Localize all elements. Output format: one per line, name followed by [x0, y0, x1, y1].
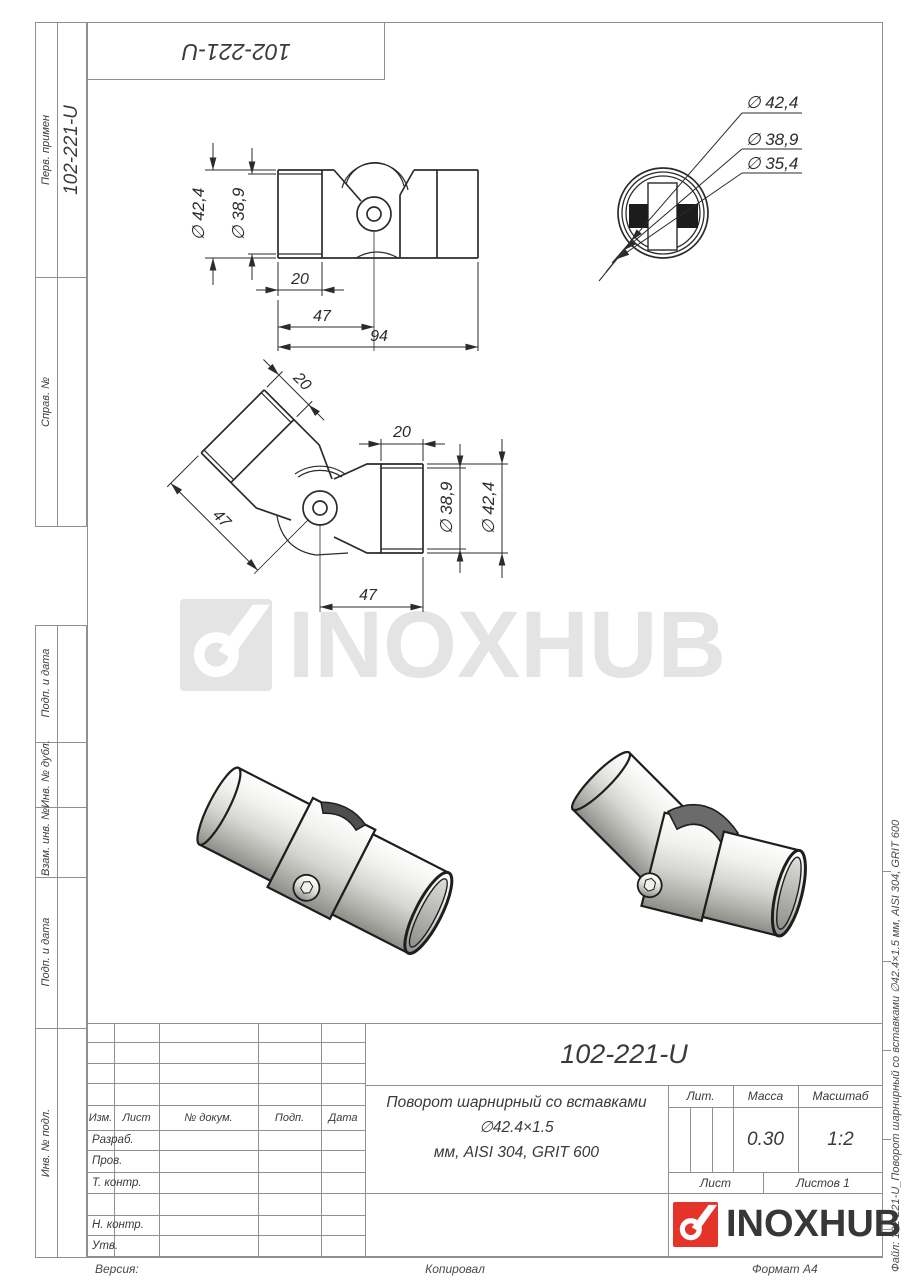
tb-header-list: Лист: [114, 1105, 159, 1130]
sidebar-label-inv-dubl: Инв. № дубл.: [40, 740, 52, 808]
tb-header-dokum: № докум.: [159, 1105, 258, 1130]
sidebar-label-perv-primen: Перв. примен: [40, 115, 52, 185]
tb-staff-blank: [87, 1193, 159, 1215]
tb-description-line1: Поворот шарнирный со вставками ∅42.4×1.5: [365, 1091, 668, 1141]
tb-scale-label: Масштаб: [798, 1085, 883, 1107]
tb-staff-prov: Пров.: [87, 1150, 159, 1172]
tb-sheet-label: Лист: [668, 1172, 763, 1193]
tb-staff-utv: Утв.: [87, 1235, 159, 1257]
footer-logo: INOXHUB: [673, 1202, 901, 1247]
top-reversed-stamp-text: 102-221-U: [182, 38, 291, 65]
sidebar-label-sprav-no: Справ. №: [40, 377, 52, 427]
tb-header-izm: Изм.: [87, 1105, 114, 1130]
tb-staff-razrab: Разраб.: [87, 1130, 159, 1150]
footer-logo-mark-icon: [673, 1202, 718, 1247]
drawing-sheet: { "page": { "designation": "102-221-U", …: [0, 0, 905, 1280]
tb-lit-label: Лит.: [668, 1085, 733, 1107]
top-reversed-stamp: 102-221-U: [87, 22, 385, 80]
sidebar-label-inv-podl: Инв. № подл.: [40, 1109, 52, 1177]
footer-logo-text: INOXHUB: [726, 1203, 901, 1246]
tb-header-podp: Подп.: [258, 1105, 321, 1130]
sidebar-label-podp-data-2: Подп. и дата: [40, 918, 52, 987]
footer-format-label: Формат А4: [752, 1262, 818, 1276]
tb-scale-value: 1:2: [798, 1107, 883, 1172]
footer-version-label: Версия:: [95, 1262, 139, 1276]
sidebar-label-podp-data-1: Подп. и дата: [40, 649, 52, 718]
tb-header-data: Дата: [321, 1105, 365, 1130]
tb-sheets-label: Листов 1: [763, 1172, 883, 1193]
tb-staff-n-kontr: Н. контр.: [87, 1215, 159, 1235]
tb-designation: 102-221-U: [365, 1023, 883, 1085]
footer-copied-label: Копировал: [405, 1262, 505, 1276]
tb-mass-label: Масса: [733, 1085, 798, 1107]
sidebar-label-vzam-inv: Взам. инв. №: [40, 808, 52, 876]
tb-staff-t-kontr: Т. контр.: [87, 1172, 159, 1193]
tb-mass-value: 0.30: [733, 1107, 798, 1172]
sidebar-value-designation: 102-221-U: [61, 105, 83, 195]
sidebar-upper-box: [35, 22, 87, 527]
tb-description-line2: мм, AISI 304, GRIT 600: [365, 1141, 668, 1166]
